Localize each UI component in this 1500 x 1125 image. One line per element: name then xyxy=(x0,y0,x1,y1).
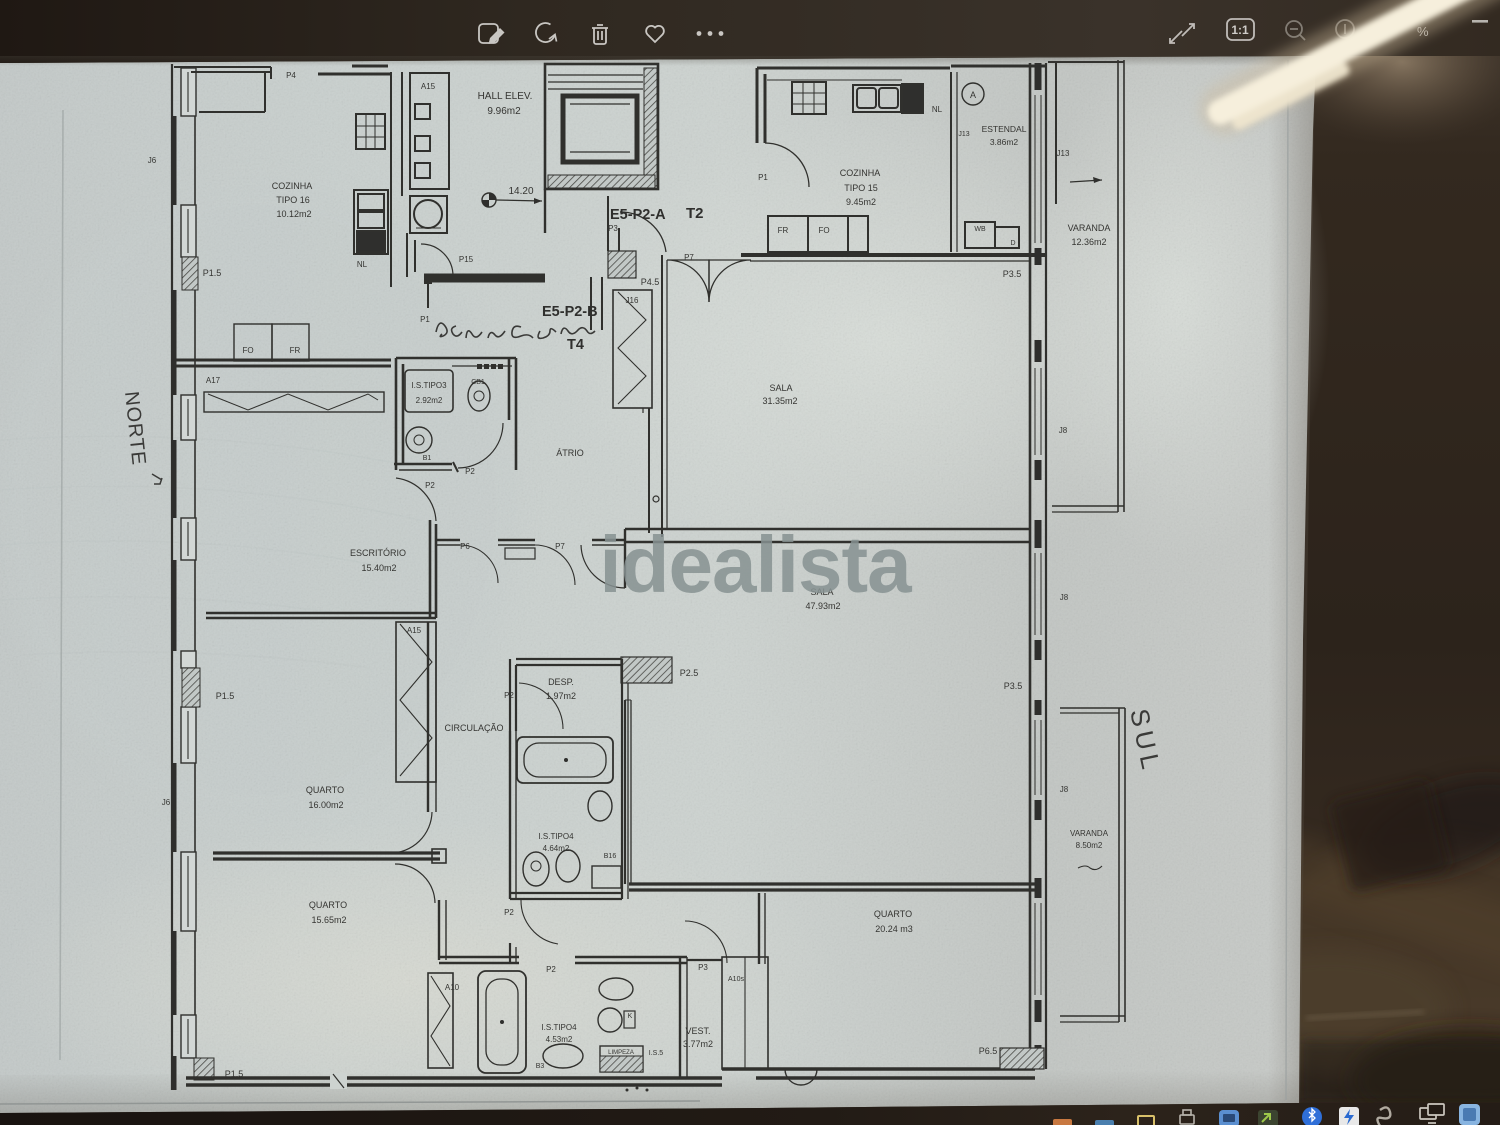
svg-text:P2: P2 xyxy=(546,965,556,974)
svg-text:B3: B3 xyxy=(536,1063,545,1070)
svg-text:P1: P1 xyxy=(758,173,768,182)
svg-text:J6: J6 xyxy=(148,156,157,165)
svg-text:10.12m2: 10.12m2 xyxy=(276,209,311,219)
svg-text:HALL ELEV.: HALL ELEV. xyxy=(478,91,533,102)
svg-text:TIPO 16: TIPO 16 xyxy=(276,195,310,205)
svg-text:P1.5: P1.5 xyxy=(225,1069,244,1079)
svg-text:TIPO 15: TIPO 15 xyxy=(844,183,878,193)
svg-text:QUARTO: QUARTO xyxy=(306,785,344,795)
svg-text:FR: FR xyxy=(778,226,789,235)
svg-text:T4: T4 xyxy=(567,337,584,353)
svg-text:CIRCULAÇÃO: CIRCULAÇÃO xyxy=(444,723,503,733)
svg-text:P2.5: P2.5 xyxy=(680,668,699,678)
svg-text:K: K xyxy=(628,1013,633,1020)
svg-text:1.97m2: 1.97m2 xyxy=(546,691,576,701)
svg-text:31.35m2: 31.35m2 xyxy=(762,396,797,406)
svg-text:1:1: 1:1 xyxy=(1231,23,1249,37)
svg-text:A: A xyxy=(970,90,976,100)
svg-text:SALA: SALA xyxy=(769,383,792,393)
svg-text:COZINHA: COZINHA xyxy=(272,181,313,191)
svg-text:P2: P2 xyxy=(425,481,435,490)
svg-text:J16: J16 xyxy=(626,296,639,305)
svg-text:J8: J8 xyxy=(1059,426,1068,435)
svg-text:P4: P4 xyxy=(286,71,296,80)
svg-text:QUARTO: QUARTO xyxy=(874,909,912,919)
svg-text:NL: NL xyxy=(357,260,368,269)
svg-text:ESTENDAL: ESTENDAL xyxy=(982,124,1027,134)
svg-text:P2: P2 xyxy=(504,691,514,700)
svg-text:P15: P15 xyxy=(459,255,474,264)
svg-text:I.S.5: I.S.5 xyxy=(649,1050,664,1057)
svg-text:P1.5: P1.5 xyxy=(216,691,235,701)
svg-text:P1: P1 xyxy=(420,315,430,324)
svg-text:A15: A15 xyxy=(421,82,436,91)
svg-text:VARANDA: VARANDA xyxy=(1070,829,1109,838)
svg-text:2.92m2: 2.92m2 xyxy=(416,396,443,405)
svg-text:CB1: CB1 xyxy=(471,379,485,386)
svg-text:9.45m2: 9.45m2 xyxy=(846,197,876,207)
svg-text:P4.5: P4.5 xyxy=(641,277,660,287)
svg-text:idealista: idealista xyxy=(599,520,912,609)
svg-text:P3: P3 xyxy=(698,963,708,972)
svg-text:9.96m2: 9.96m2 xyxy=(487,106,521,117)
svg-text:P7: P7 xyxy=(684,253,694,262)
svg-text:J13: J13 xyxy=(958,131,969,138)
svg-text:I.S.TIPO4: I.S.TIPO4 xyxy=(538,832,574,841)
svg-text:8.50m2: 8.50m2 xyxy=(1076,841,1103,850)
svg-text:FR: FR xyxy=(290,346,301,355)
svg-text:A17: A17 xyxy=(206,376,221,385)
svg-text:12.36m2: 12.36m2 xyxy=(1071,237,1106,247)
svg-text:J8: J8 xyxy=(1060,785,1069,794)
svg-text:NL: NL xyxy=(932,105,943,114)
svg-text:P2: P2 xyxy=(504,908,514,917)
svg-text:14.20: 14.20 xyxy=(508,186,533,197)
svg-text:QUARTO: QUARTO xyxy=(309,900,347,910)
svg-text:COZINHA: COZINHA xyxy=(840,168,881,178)
svg-text:16.00m2: 16.00m2 xyxy=(308,800,343,810)
svg-text:P3: P3 xyxy=(608,224,618,233)
svg-text:A10: A10 xyxy=(445,983,460,992)
svg-text:I.S.TIPO4: I.S.TIPO4 xyxy=(541,1023,577,1032)
svg-text:3.86m2: 3.86m2 xyxy=(990,137,1019,147)
svg-text:E5-P2-B: E5-P2-B xyxy=(542,304,598,320)
svg-text:P7: P7 xyxy=(555,542,565,551)
svg-text:VEST.: VEST. xyxy=(685,1026,710,1036)
svg-text:15.65m2: 15.65m2 xyxy=(311,915,346,925)
svg-text:DESP.: DESP. xyxy=(548,677,574,687)
svg-text:ÁTRIO: ÁTRIO xyxy=(556,448,584,458)
svg-text:E5-P2-A: E5-P2-A xyxy=(610,207,666,223)
svg-text:P1.5: P1.5 xyxy=(203,268,222,278)
svg-text:FO: FO xyxy=(242,346,253,355)
svg-text:D: D xyxy=(1010,240,1015,247)
svg-text:J6: J6 xyxy=(162,798,171,807)
svg-text:VARANDA: VARANDA xyxy=(1068,223,1111,233)
svg-text:J13: J13 xyxy=(1057,149,1070,158)
svg-text:P3.5: P3.5 xyxy=(1003,269,1022,279)
svg-text:P2: P2 xyxy=(465,467,475,476)
svg-text:20.24 m3: 20.24 m3 xyxy=(875,924,913,934)
svg-text:4.53m2: 4.53m2 xyxy=(546,1035,573,1044)
svg-text:T2: T2 xyxy=(686,205,704,222)
svg-text:B16: B16 xyxy=(604,853,617,860)
svg-text:P3.5: P3.5 xyxy=(1004,681,1023,691)
svg-text:4.64m2: 4.64m2 xyxy=(543,844,570,853)
svg-text:A10s: A10s xyxy=(728,976,744,983)
svg-text:A15: A15 xyxy=(407,626,422,635)
svg-text:P6: P6 xyxy=(460,542,470,551)
svg-text:I.S.TIPO3: I.S.TIPO3 xyxy=(411,381,447,390)
svg-text:B1: B1 xyxy=(423,455,432,462)
svg-text:LIMPEZA: LIMPEZA xyxy=(608,1050,634,1056)
svg-text:WB: WB xyxy=(974,226,986,233)
svg-text:FO: FO xyxy=(818,226,829,235)
svg-text:ESCRITÓRIO: ESCRITÓRIO xyxy=(350,548,406,558)
svg-text:3.77m2: 3.77m2 xyxy=(683,1039,713,1049)
svg-text:J8: J8 xyxy=(1060,593,1069,602)
svg-text:15.40m2: 15.40m2 xyxy=(361,563,396,573)
svg-text:P6.5: P6.5 xyxy=(979,1046,998,1056)
